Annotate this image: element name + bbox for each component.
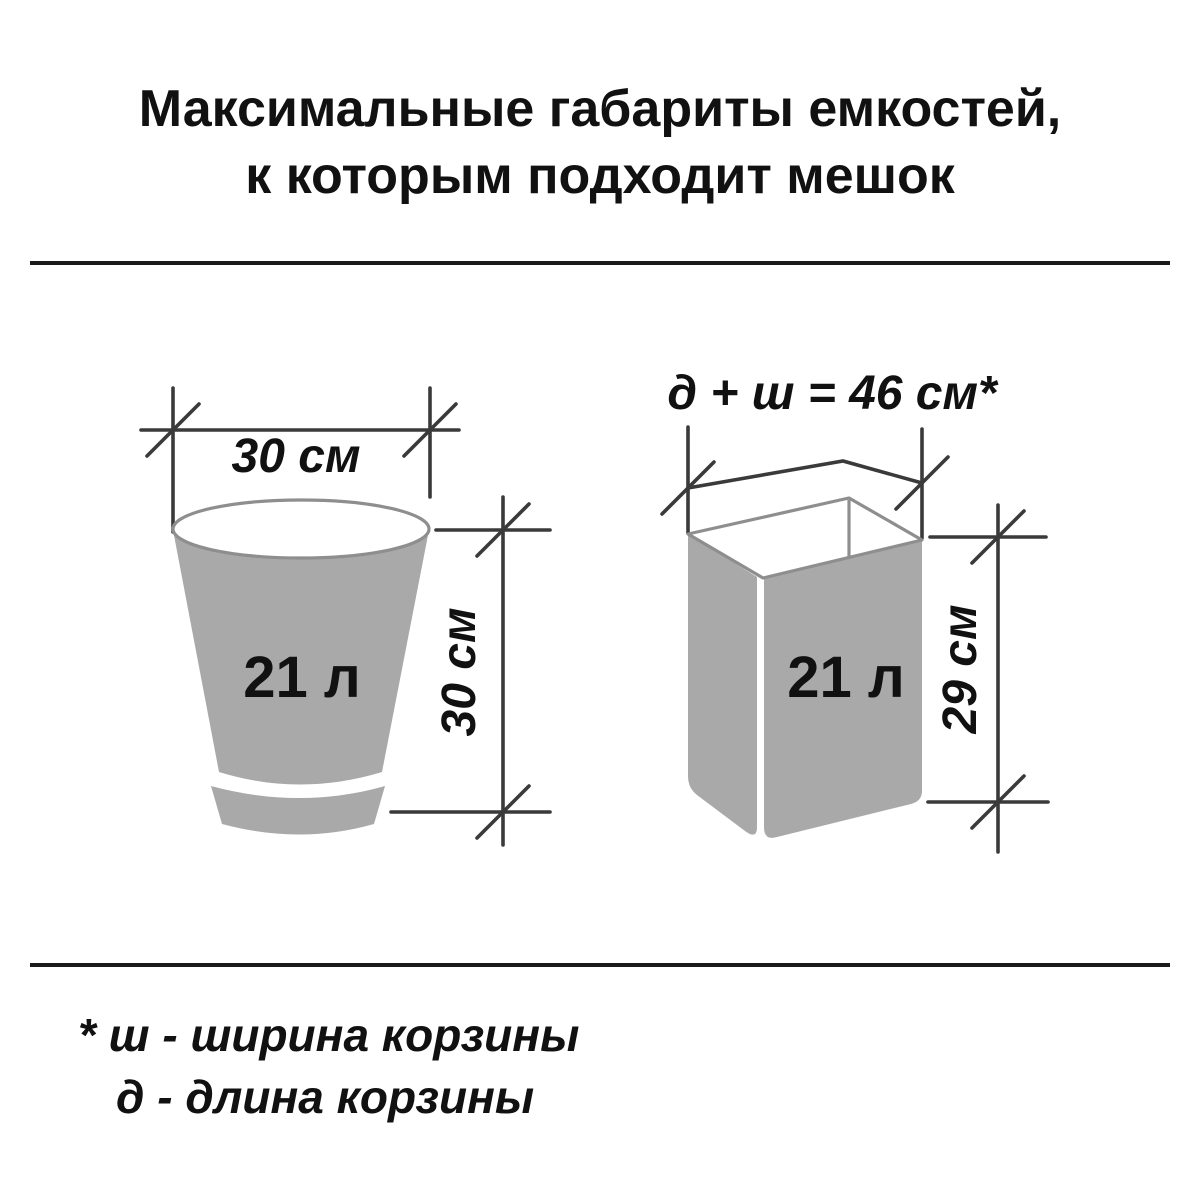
rect-bin-formula-label: д + ш = 46 см* <box>667 367 999 420</box>
rect-bin-volume-label: 21 л <box>787 645 904 710</box>
rect-bin-height-label: 29 см <box>934 605 987 735</box>
footnote: * ш - ширина корзины д - длина корзины <box>78 1004 579 1128</box>
round-bin-height-label: 30 см <box>433 608 486 737</box>
rect-bin-left-face <box>688 534 757 835</box>
round-bin-volume-label: 21 л <box>243 645 360 710</box>
round-bin-base <box>211 786 385 835</box>
footnote-line-2: д - длина корзины <box>78 1066 579 1128</box>
dimension-line <box>688 461 922 488</box>
footnote-line-1: * ш - ширина корзины <box>78 1004 579 1066</box>
round-bin-width-label: 30 см <box>232 430 361 483</box>
round-bin-opening <box>173 500 429 558</box>
